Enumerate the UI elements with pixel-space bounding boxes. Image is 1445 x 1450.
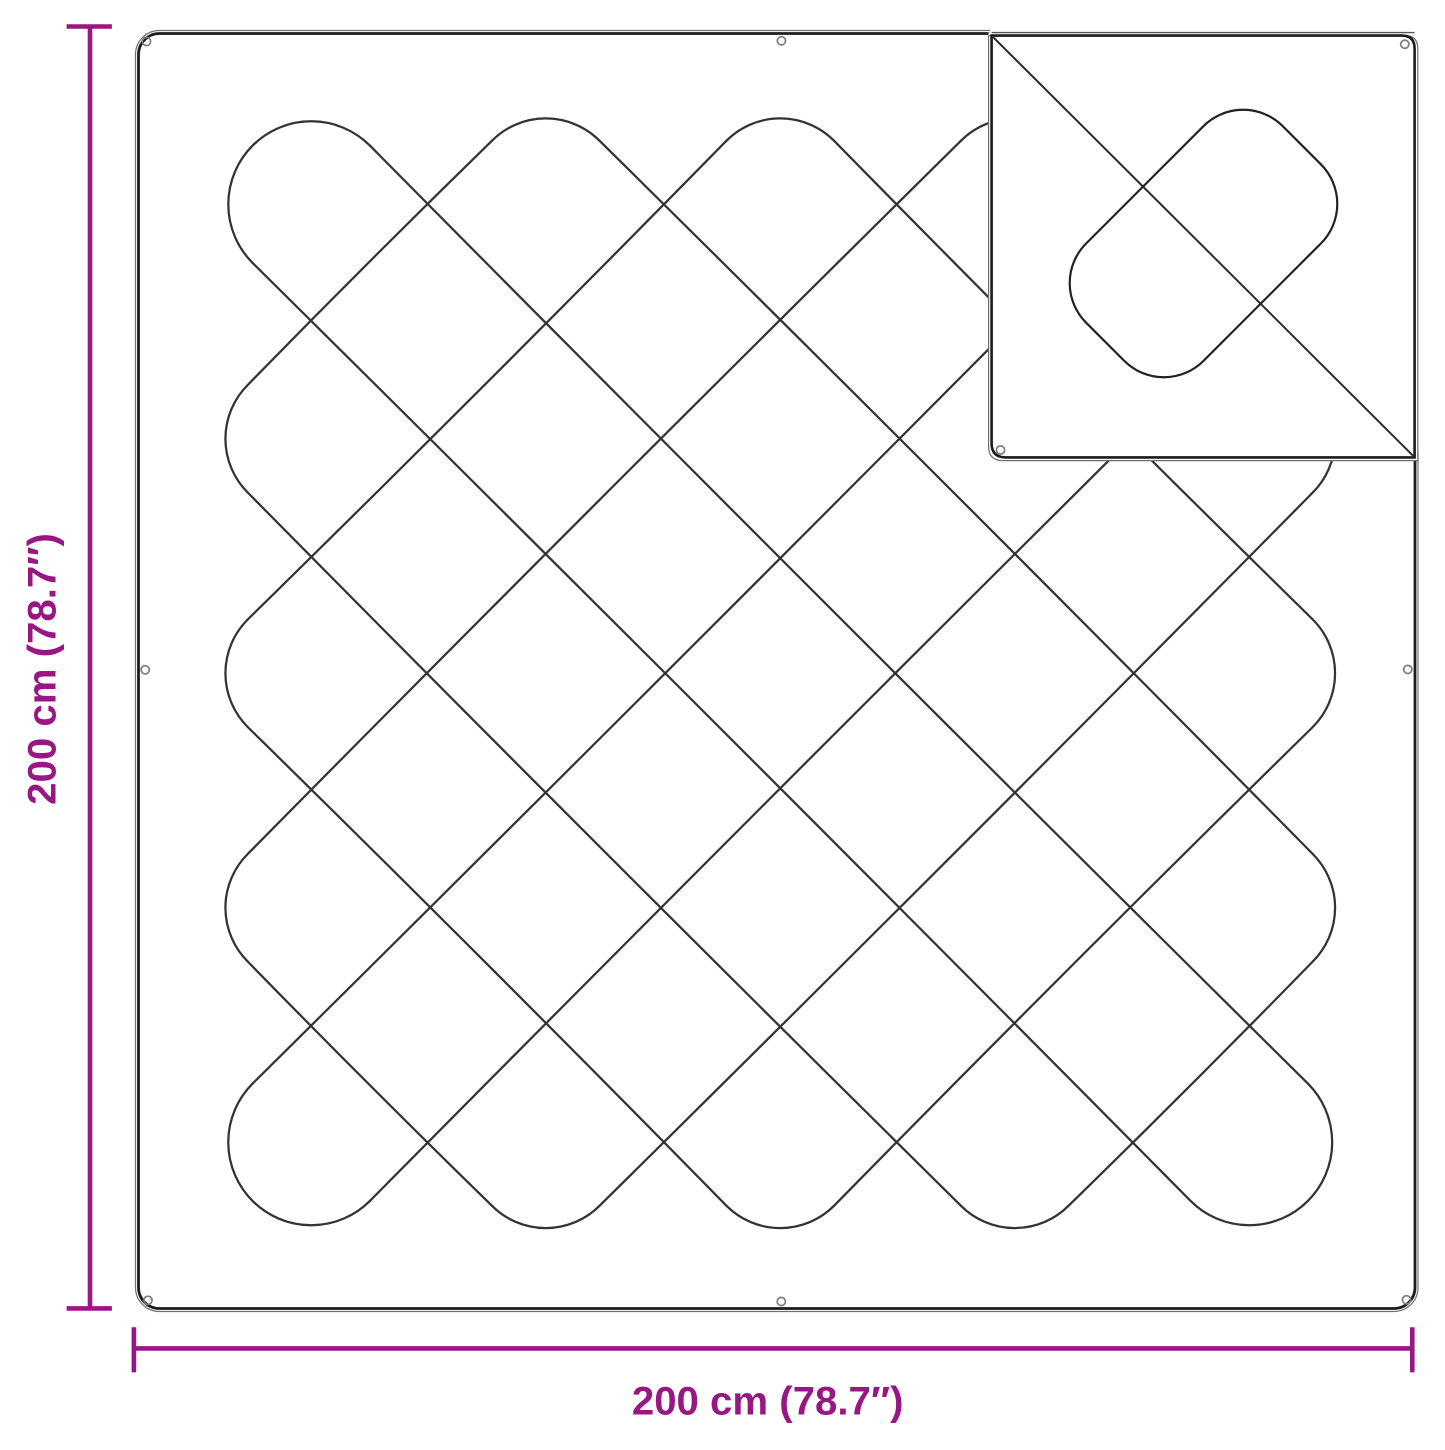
svg-text:200 cm (78.7″): 200 cm (78.7″) [632, 1378, 904, 1423]
svg-text:200 cm (78.7″): 200 cm (78.7″) [20, 533, 65, 805]
